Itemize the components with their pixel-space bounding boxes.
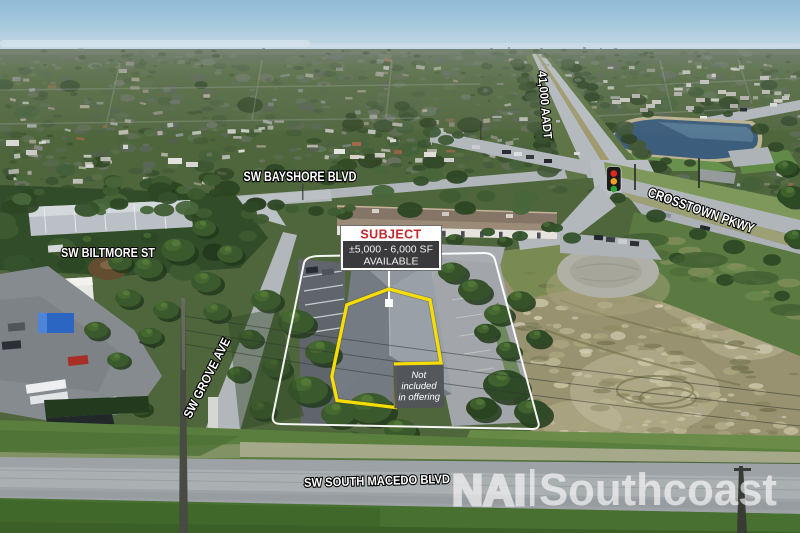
svg-text:Not: Not — [411, 370, 426, 381]
svg-text:SW BILTMORE ST: SW BILTMORE ST — [61, 246, 155, 260]
svg-text:±5,000 - 6,000 SF: ±5,000 - 6,000 SF — [349, 244, 433, 256]
svg-text:NAI: NAI — [452, 466, 526, 515]
svg-text:SUBJECT: SUBJECT — [360, 228, 421, 242]
svg-text:AVAILABLE: AVAILABLE — [363, 256, 418, 268]
svg-text:in offering: in offering — [398, 392, 441, 404]
svg-text:included: included — [401, 381, 437, 393]
svg-text:SW BAYSHORE BLVD: SW BAYSHORE BLVD — [244, 168, 357, 184]
svg-text:Southcoast: Southcoast — [539, 464, 777, 515]
